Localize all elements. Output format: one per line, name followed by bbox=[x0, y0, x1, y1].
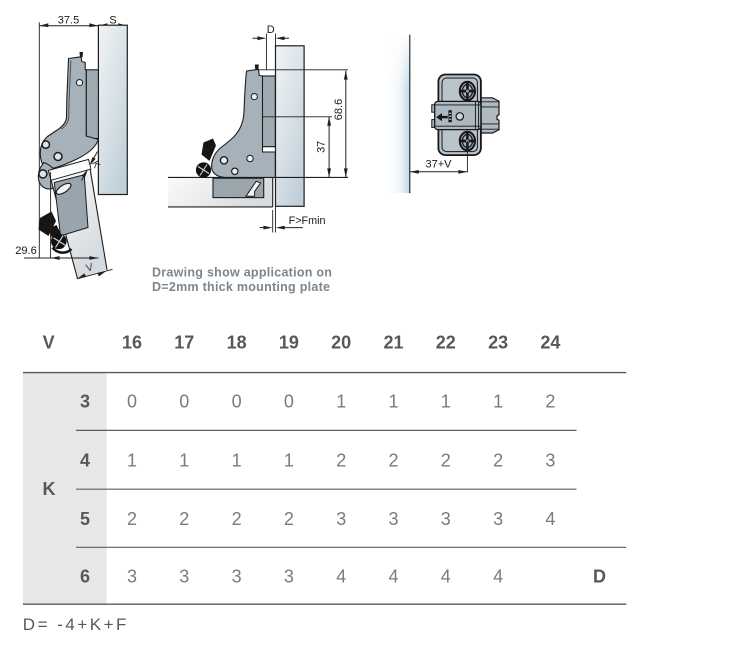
svg-text:4: 4 bbox=[388, 567, 398, 587]
svg-text:2: 2 bbox=[232, 509, 242, 529]
svg-text:22: 22 bbox=[436, 332, 456, 352]
svg-text:V: V bbox=[43, 332, 55, 352]
svg-text:3: 3 bbox=[284, 567, 294, 587]
svg-text:3: 3 bbox=[232, 567, 242, 587]
svg-text:1: 1 bbox=[388, 392, 398, 412]
svg-text:2: 2 bbox=[493, 451, 503, 471]
svg-text:3: 3 bbox=[336, 509, 346, 529]
svg-text:16: 16 bbox=[122, 332, 142, 352]
svg-text:20: 20 bbox=[331, 332, 351, 352]
svg-text:37.5: 37.5 bbox=[58, 15, 79, 27]
svg-text:3: 3 bbox=[545, 451, 555, 471]
svg-text:0: 0 bbox=[179, 392, 189, 412]
svg-text:D: D bbox=[267, 24, 275, 36]
svg-text:4: 4 bbox=[441, 567, 451, 587]
svg-text:37+V: 37+V bbox=[426, 159, 453, 171]
svg-text:1: 1 bbox=[127, 451, 137, 471]
svg-text:29.6: 29.6 bbox=[15, 245, 36, 257]
svg-text:2: 2 bbox=[545, 392, 555, 412]
svg-text:4: 4 bbox=[545, 509, 555, 529]
svg-text:D=2mm thick mounting plate: D=2mm thick mounting plate bbox=[152, 280, 330, 294]
svg-text:2: 2 bbox=[179, 509, 189, 529]
svg-text:2: 2 bbox=[127, 509, 137, 529]
svg-text:23: 23 bbox=[488, 332, 508, 352]
svg-text:18: 18 bbox=[227, 332, 247, 352]
svg-text:3: 3 bbox=[179, 567, 189, 587]
svg-text:19: 19 bbox=[279, 332, 299, 352]
svg-text:K: K bbox=[43, 479, 56, 499]
svg-text:4: 4 bbox=[336, 567, 346, 587]
svg-text:1: 1 bbox=[336, 392, 346, 412]
svg-text:1: 1 bbox=[179, 451, 189, 471]
svg-text:4: 4 bbox=[493, 567, 503, 587]
svg-text:Drawing show application on: Drawing show application on bbox=[152, 266, 332, 280]
svg-text:6: 6 bbox=[80, 567, 90, 587]
svg-text:4: 4 bbox=[80, 451, 90, 471]
svg-text:2: 2 bbox=[284, 509, 294, 529]
svg-text:3: 3 bbox=[441, 509, 451, 529]
svg-text:3: 3 bbox=[127, 567, 137, 587]
svg-text:3: 3 bbox=[80, 392, 90, 412]
svg-text:F>Fmin: F>Fmin bbox=[289, 215, 326, 227]
svg-text:1: 1 bbox=[441, 392, 451, 412]
svg-text:1: 1 bbox=[493, 392, 503, 412]
svg-text:5: 5 bbox=[80, 509, 90, 529]
svg-text:1: 1 bbox=[284, 451, 294, 471]
svg-text:3: 3 bbox=[388, 509, 398, 529]
svg-text:24: 24 bbox=[540, 332, 560, 352]
svg-text:3: 3 bbox=[493, 509, 503, 529]
svg-text:37: 37 bbox=[316, 141, 328, 153]
svg-text:0: 0 bbox=[232, 392, 242, 412]
svg-text:D= -4+K+F: D= -4+K+F bbox=[23, 615, 129, 634]
svg-text:68.6: 68.6 bbox=[333, 99, 345, 120]
svg-text:17: 17 bbox=[174, 332, 194, 352]
svg-text:2: 2 bbox=[388, 451, 398, 471]
svg-text:2: 2 bbox=[441, 451, 451, 471]
svg-text:0: 0 bbox=[127, 392, 137, 412]
svg-text:D: D bbox=[593, 567, 606, 587]
svg-text:2: 2 bbox=[336, 451, 346, 471]
svg-text:1: 1 bbox=[232, 451, 242, 471]
svg-text:21: 21 bbox=[383, 332, 403, 352]
svg-text:0: 0 bbox=[284, 392, 294, 412]
